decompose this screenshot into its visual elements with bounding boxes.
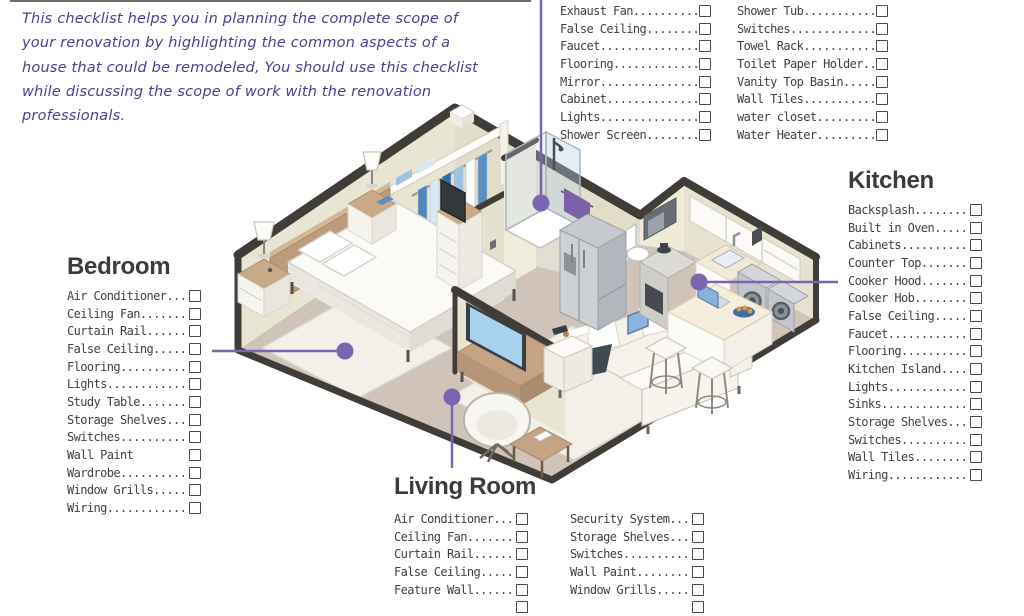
checkbox[interactable]	[189, 484, 201, 496]
checkbox[interactable]	[876, 76, 888, 88]
checklist-row: Cabinets..........	[848, 236, 982, 254]
checkbox[interactable]	[699, 76, 711, 88]
checklist-item-label: Wall Tiles........	[848, 450, 970, 464]
checklist-item-label: Window Grills.....	[67, 483, 189, 497]
checkbox[interactable]	[189, 361, 201, 373]
checklist-item-label: False Ceiling.....	[67, 342, 189, 356]
checkbox[interactable]	[189, 467, 201, 479]
bedroom-leader-dot	[337, 343, 354, 360]
checklist-row: Curtain Rail......	[67, 322, 201, 340]
checklist-row: Toilet Paper Holder..	[737, 55, 888, 73]
checklist-item-label: Water Heater.........	[737, 128, 876, 142]
checkbox[interactable]	[516, 531, 528, 543]
bedroom-title: Bedroom	[67, 253, 170, 281]
checkbox[interactable]	[189, 378, 201, 390]
checkbox[interactable]	[189, 431, 201, 443]
checklist-row: Flooring..........	[848, 343, 982, 361]
fridge-icon	[560, 214, 626, 330]
checklist-row: Faucet...............	[560, 37, 711, 55]
checkbox[interactable]	[692, 566, 704, 578]
bathroom-leader-dot	[533, 195, 550, 212]
checkbox[interactable]	[699, 111, 711, 123]
checkbox[interactable]	[699, 93, 711, 105]
checklist-row: False Ceiling.....	[394, 563, 528, 581]
checklist-item-label: Built in Oven.....	[848, 221, 970, 235]
checklist-item-label: Faucet...............	[560, 39, 699, 53]
checklist-item-label: Mirror...............	[560, 75, 699, 89]
checklist-item-label: Backsplash........	[848, 203, 970, 217]
checklist-row: Faucet............	[848, 325, 982, 343]
checklist-item-label: Shower Tub...........	[737, 4, 876, 18]
checklist-item-label: Flooring..........	[67, 360, 189, 374]
checkbox[interactable]	[189, 449, 201, 461]
checklist-row: Ceiling Fan.......	[394, 528, 528, 546]
kitchen-checklist: Backsplash........ Built in Oven..... Ca…	[848, 201, 982, 484]
checklist-row: Wiring............	[848, 466, 982, 484]
checklist-item-label: False Ceiling.....	[848, 309, 970, 323]
checklist-row: Air Conditioner...	[394, 510, 528, 528]
checkbox[interactable]	[876, 58, 888, 70]
checklist-row: False Ceiling........	[560, 20, 711, 38]
checkbox[interactable]	[699, 129, 711, 141]
checkbox[interactable]	[189, 502, 201, 514]
checklist-row: Vanity Top Basin.....	[737, 73, 888, 91]
checklist-row: Cabinet..............	[560, 90, 711, 108]
checklist-item-label: Counter Top.......	[848, 256, 970, 270]
checklist-row: Lights...............	[560, 108, 711, 126]
checklist-row: water closet.........	[737, 108, 888, 126]
checklist-item-label: Storage Shelves...	[848, 415, 970, 429]
checklist-row: Kitchen Island....	[848, 360, 982, 378]
checklist-row: Flooring..........	[67, 358, 201, 376]
checklist-item-label: Cooker Hood.......	[848, 274, 970, 288]
checkbox[interactable]	[876, 40, 888, 52]
checklist-row: Wall Tiles...........	[737, 90, 888, 108]
checkbox[interactable]	[516, 566, 528, 578]
checklist-row: Window Grills.....	[67, 482, 201, 500]
checklist-item-label: Air Conditioner...	[67, 289, 189, 303]
checkbox[interactable]	[189, 343, 201, 355]
checklist-row: Switches..........	[67, 429, 201, 447]
checklist-row: Switches..........	[570, 545, 704, 563]
checklist-row: Sinks.............	[848, 396, 982, 414]
checklist-row: Cooker Hob........	[848, 289, 982, 307]
checkbox[interactable]	[876, 111, 888, 123]
checkbox[interactable]	[189, 396, 201, 408]
checklist-row: Air Conditioner...	[67, 287, 201, 305]
intro-line: professionals.	[22, 104, 492, 128]
intro-line: while discussing the scope of work with …	[22, 80, 492, 104]
checklist-item-label: Cabinets..........	[848, 238, 970, 252]
checklist-item-label: False Ceiling........	[560, 22, 699, 36]
checkbox[interactable]	[189, 290, 201, 302]
checklist-item-label: water closet.........	[737, 110, 876, 124]
checkbox[interactable]	[970, 345, 982, 357]
checkbox[interactable]	[970, 381, 982, 393]
checklist-item-label: Kitchen Island....	[848, 362, 970, 376]
checklist-item-label: Switches..........	[570, 547, 692, 561]
checklist-item-label: Ceiling Fan.......	[394, 530, 516, 544]
checkbox[interactable]	[692, 531, 704, 543]
checklist-row: Shower Screen........	[560, 126, 711, 144]
checklist-item-label: Exhaust Fan..........	[560, 4, 699, 18]
checkbox[interactable]	[970, 292, 982, 304]
checklist-row: Curtain Rail......	[394, 545, 528, 563]
checklist-row: Towel Rack...........	[737, 37, 888, 55]
kitchen-leader-dot	[691, 274, 708, 291]
checkbox[interactable]	[516, 513, 528, 525]
checklist-item-label: Wiring............	[67, 501, 189, 515]
checklist-row: Lights............	[67, 375, 201, 393]
kitchen-title: Kitchen	[848, 167, 934, 195]
cutoff-band	[10, 0, 531, 2]
checkbox[interactable]	[970, 204, 982, 216]
checklist-row: Wardrobe..........	[67, 464, 201, 482]
checklist-item-label: Lights............	[67, 377, 189, 391]
checklist-row: Counter Top.......	[848, 254, 982, 272]
checklist-row: Wall Paint........	[570, 563, 704, 581]
checkbox[interactable]	[692, 513, 704, 525]
checklist-item-label: Study Table.......	[67, 395, 189, 409]
checklist-item-label: Switches.............	[737, 22, 876, 36]
checkbox[interactable]	[970, 257, 982, 269]
checklist-row: Shower Tub...........	[737, 2, 888, 20]
checklist-row: Exhaust Fan..........	[560, 2, 711, 20]
checklist-item-label: Lights...............	[560, 110, 699, 124]
checkbox[interactable]	[189, 308, 201, 320]
checkbox[interactable]	[970, 328, 982, 340]
checklist-row: Mirror...............	[560, 73, 711, 91]
checklist-row: Storage Shelves...	[570, 528, 704, 546]
bathroom-checklist-col2: Shower Tub........... Switches..........…	[737, 2, 888, 144]
living-room-leader-dot	[444, 389, 461, 406]
checklist-item-label: Flooring..........	[848, 344, 970, 358]
checklist-item-label: Wall Tiles...........	[737, 92, 876, 106]
checklist-item-label: Cabinet..............	[560, 92, 699, 106]
checklist-row: Wiring............	[67, 499, 201, 517]
checkbox[interactable]	[970, 222, 982, 234]
checklist-item-label: Wall Paint	[67, 448, 189, 462]
checkbox[interactable]	[876, 93, 888, 105]
checklist-item-label: Curtain Rail......	[394, 547, 516, 561]
checklist-row: Built in Oven.....	[848, 219, 982, 237]
checklist-item-label: Ceiling Fan.......	[67, 307, 189, 321]
clock-icon	[268, 268, 272, 272]
checkbox[interactable]	[516, 548, 528, 560]
checklist-row: Lights............	[848, 378, 982, 396]
checkbox[interactable]	[699, 58, 711, 70]
checkbox[interactable]	[692, 548, 704, 560]
bathroom-checklist-col1: Exhaust Fan.......... False Ceiling.....…	[560, 2, 711, 144]
checkbox[interactable]	[516, 601, 528, 613]
checkbox[interactable]	[970, 310, 982, 322]
checklist-row: Wall Paint	[67, 446, 201, 464]
checklist-row: Switches..........	[848, 431, 982, 449]
checkbox[interactable]	[516, 584, 528, 596]
checklist-item-label: Wiring............	[848, 468, 970, 482]
checklist-item-label: Switches..........	[67, 430, 189, 444]
checkbox[interactable]	[699, 5, 711, 17]
checkbox[interactable]	[970, 275, 982, 287]
checklist-row: Window Grills.....	[570, 581, 704, 599]
checkbox[interactable]	[699, 40, 711, 52]
intro-line: This checklist helps you in planning the…	[22, 7, 492, 31]
checkbox[interactable]	[970, 434, 982, 446]
checklist-item-label: Switches..........	[848, 433, 970, 447]
checklist-item-label: Vanity Top Basin.....	[737, 75, 876, 89]
checklist-row: False Ceiling.....	[848, 307, 982, 325]
living-room-checklist-col2: Security System... Storage Shelves... Sw…	[570, 510, 704, 616]
checkbox[interactable]	[970, 451, 982, 463]
checklist-row	[570, 598, 704, 616]
checklist-row: Security System...	[570, 510, 704, 528]
checklist-row: Wall Tiles........	[848, 449, 982, 467]
bedroom-checklist: Air Conditioner... Ceiling Fan....... Cu…	[67, 287, 201, 517]
checklist-row: Ceiling Fan.......	[67, 305, 201, 323]
checklist-row: Storage Shelves...	[67, 411, 201, 429]
checkbox[interactable]	[970, 363, 982, 375]
checklist-row: Cooker Hood.......	[848, 272, 982, 290]
checkbox[interactable]	[970, 239, 982, 251]
checklist-row: Feature Wall......	[394, 581, 528, 599]
checklist-item-label: Security System...	[570, 512, 692, 526]
checklist-row: Storage Shelves...	[848, 413, 982, 431]
checkbox[interactable]	[699, 23, 711, 35]
checkbox[interactable]	[876, 129, 888, 141]
checklist-item-label: Storage Shelves...	[67, 413, 189, 427]
checklist-item-label: Wall Paint........	[570, 565, 692, 579]
renovation-checklist-page: { "intro": { "lines": [ "This checklist …	[0, 0, 1024, 600]
checkbox[interactable]	[692, 584, 704, 596]
checkbox[interactable]	[189, 325, 201, 337]
checkbox[interactable]	[876, 5, 888, 17]
checklist-item-label: Towel Rack...........	[737, 39, 876, 53]
checklist-item-label: Window Grills.....	[570, 583, 692, 597]
checklist-item-label: Faucet............	[848, 327, 970, 341]
checkbox[interactable]	[876, 23, 888, 35]
checkbox[interactable]	[970, 398, 982, 410]
living-room-checklist-col1: Air Conditioner... Ceiling Fan....... Cu…	[394, 510, 528, 616]
checklist-row: Switches.............	[737, 20, 888, 38]
checkbox[interactable]	[692, 601, 704, 613]
checklist-item-label: Curtain Rail......	[67, 324, 189, 338]
checkbox[interactable]	[189, 414, 201, 426]
intro-paragraph: This checklist helps you in planning the…	[22, 7, 492, 128]
checklist-row: Water Heater.........	[737, 126, 888, 144]
intro-line: your renovation by highlighting the comm…	[22, 31, 492, 55]
checklist-item-label: False Ceiling.....	[394, 565, 516, 579]
checklist-row	[394, 598, 528, 616]
checklist-row: Backsplash........	[848, 201, 982, 219]
checklist-item-label: Sinks.............	[848, 397, 970, 411]
checklist-row: False Ceiling.....	[67, 340, 201, 358]
checklist-item-label: Cooker Hob........	[848, 291, 970, 305]
checklist-item-label: Toilet Paper Holder..	[737, 57, 876, 71]
checklist-item-label: Shower Screen........	[560, 128, 699, 142]
checklist-item-label: Air Conditioner...	[394, 512, 516, 526]
checkbox[interactable]	[970, 416, 982, 428]
checklist-item-label: Storage Shelves...	[570, 530, 692, 544]
checklist-row: Flooring.............	[560, 55, 711, 73]
bar-stool-icon	[692, 357, 732, 414]
intro-line: house that could be remodeled, You shoul…	[22, 56, 492, 80]
checklist-item-label: Lights............	[848, 380, 970, 394]
living-room-title: Living Room	[394, 473, 536, 501]
checkbox[interactable]	[970, 469, 982, 481]
checklist-item-label: Feature Wall......	[394, 583, 516, 597]
checklist-row: Study Table.......	[67, 393, 201, 411]
checklist-item-label: Wardrobe..........	[67, 466, 189, 480]
checklist-item-label: Flooring.............	[560, 57, 699, 71]
